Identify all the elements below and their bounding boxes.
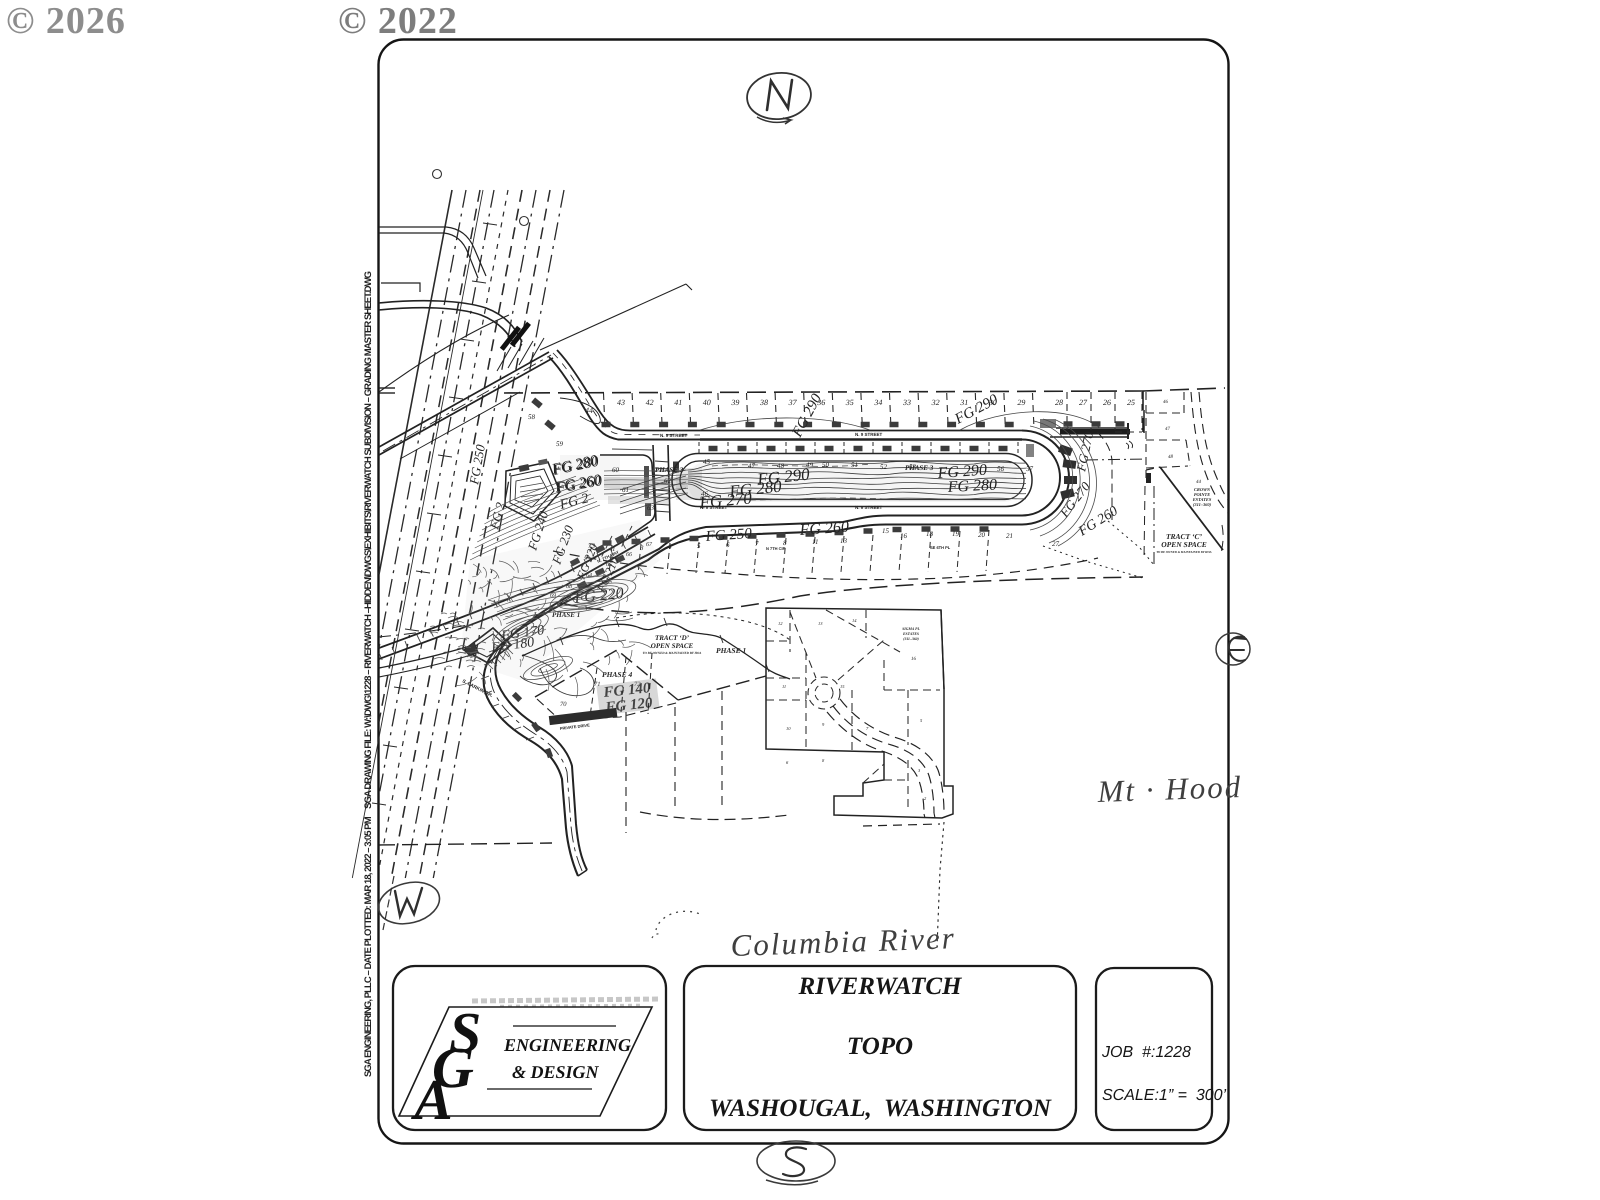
svg-text:13: 13 xyxy=(818,621,823,626)
svg-text:© 2026: © 2026 xyxy=(6,0,126,42)
svg-text:45: 45 xyxy=(703,458,711,466)
svg-text:18: 18 xyxy=(926,530,934,538)
svg-text:61: 61 xyxy=(622,486,629,494)
svg-text:40: 40 xyxy=(703,398,711,407)
svg-text:59: 59 xyxy=(556,440,564,448)
svg-text:PHASE 3: PHASE 3 xyxy=(655,466,684,474)
svg-text:(311–360): (311–360) xyxy=(903,637,919,641)
svg-text:TOPO: TOPO xyxy=(847,1033,913,1060)
svg-text:35: 35 xyxy=(845,398,854,407)
svg-text:34: 34 xyxy=(873,398,882,407)
svg-text:29: 29 xyxy=(1017,398,1025,407)
svg-text:19: 19 xyxy=(952,530,960,538)
svg-text:N 7TH CIR: N 7TH CIR xyxy=(766,546,786,551)
svg-text:14: 14 xyxy=(852,618,857,623)
svg-text:27: 27 xyxy=(1079,398,1088,407)
svg-text:& DESIGN: & DESIGN xyxy=(512,1062,600,1082)
svg-text:70: 70 xyxy=(560,701,567,708)
svg-text:46: 46 xyxy=(1163,399,1169,405)
svg-text:15: 15 xyxy=(882,527,890,535)
svg-text:44: 44 xyxy=(1196,479,1202,485)
svg-text:21: 21 xyxy=(1006,532,1013,540)
svg-text:OPEN SPACE: OPEN SPACE xyxy=(1161,540,1207,549)
svg-text:FG 280: FG 280 xyxy=(946,476,997,496)
svg-text:11: 11 xyxy=(782,684,786,689)
svg-text:15: 15 xyxy=(840,684,845,689)
svg-text:JOB #:1228: JOB #:1228 xyxy=(1101,1044,1191,1061)
svg-text:(311–360): (311–360) xyxy=(1193,502,1212,507)
svg-text:28: 28 xyxy=(1055,398,1063,407)
svg-text:41: 41 xyxy=(674,398,682,407)
svg-text:38: 38 xyxy=(759,398,768,407)
svg-text:ESTATES: ESTATES xyxy=(902,632,919,636)
svg-text:42: 42 xyxy=(646,398,654,407)
svg-text:OPEN SPACE: OPEN SPACE xyxy=(651,642,694,650)
svg-text:32: 32 xyxy=(931,398,940,407)
svg-text:47: 47 xyxy=(1165,426,1171,432)
svg-text:PHASE 3: PHASE 3 xyxy=(905,464,934,472)
svg-text:62: 62 xyxy=(664,477,672,485)
svg-text:12: 12 xyxy=(778,621,783,626)
svg-text:SCALE:1” = 300’: SCALE:1” = 300’ xyxy=(1102,1087,1227,1104)
svg-text:ENGINEERING: ENGINEERING xyxy=(503,1035,631,1055)
svg-text:PHASE 4: PHASE 4 xyxy=(602,670,632,679)
svg-text:33: 33 xyxy=(902,398,911,407)
svg-text:52: 52 xyxy=(880,463,888,471)
svg-text:56: 56 xyxy=(997,465,1005,473)
svg-text:RIVERWATCH: RIVERWATCH xyxy=(797,973,963,1000)
svg-text:43: 43 xyxy=(617,398,625,407)
svg-text:37: 37 xyxy=(788,398,798,407)
svg-text:47: 47 xyxy=(748,462,756,470)
svg-text:39: 39 xyxy=(730,398,739,407)
svg-text:SE 6TH PL: SE 6TH PL xyxy=(930,545,951,550)
svg-text:25: 25 xyxy=(1127,398,1135,407)
svg-text:N. 9 STREET: N. 9 STREET xyxy=(660,433,688,438)
svg-text:SIGMA PL: SIGMA PL xyxy=(902,627,920,631)
svg-text:A: A xyxy=(411,1067,453,1132)
svg-text:63: 63 xyxy=(647,504,655,512)
svg-text:50: 50 xyxy=(822,461,830,469)
svg-text:SGA ENGINEERING, PLLC – DATE P: SGA ENGINEERING, PLLC – DATE PLOTTED: MA… xyxy=(363,271,374,1077)
svg-text:16: 16 xyxy=(911,656,917,662)
svg-text:FG 250: FG 250 xyxy=(704,526,753,545)
svg-text:51: 51 xyxy=(851,461,858,469)
svg-text:TRACT ‘D’: TRACT ‘D’ xyxy=(655,634,690,642)
svg-text:20: 20 xyxy=(978,531,986,539)
svg-text:10: 10 xyxy=(786,726,791,731)
svg-text:WASHOUGAL, WASHINGTON: WASHOUGAL, WASHINGTON xyxy=(709,1095,1052,1122)
svg-text:60: 60 xyxy=(612,466,620,474)
svg-text:26: 26 xyxy=(1103,398,1111,407)
svg-text:57: 57 xyxy=(1026,465,1034,473)
svg-text:N. 8 STREET: N. 8 STREET xyxy=(855,505,883,510)
svg-text:FG 260: FG 260 xyxy=(798,519,849,539)
svg-text:58: 58 xyxy=(528,413,536,421)
svg-text:TO BE OWNED & MAINTAINED BY HO: TO BE OWNED & MAINTAINED BY HOA xyxy=(1156,550,1211,554)
svg-text:N. 9 STREET: N. 9 STREET xyxy=(855,432,883,437)
svg-text:Mt · Hood: Mt · Hood xyxy=(1096,769,1243,809)
svg-text:© 2022: © 2022 xyxy=(338,0,458,42)
svg-text:48: 48 xyxy=(1168,454,1174,460)
